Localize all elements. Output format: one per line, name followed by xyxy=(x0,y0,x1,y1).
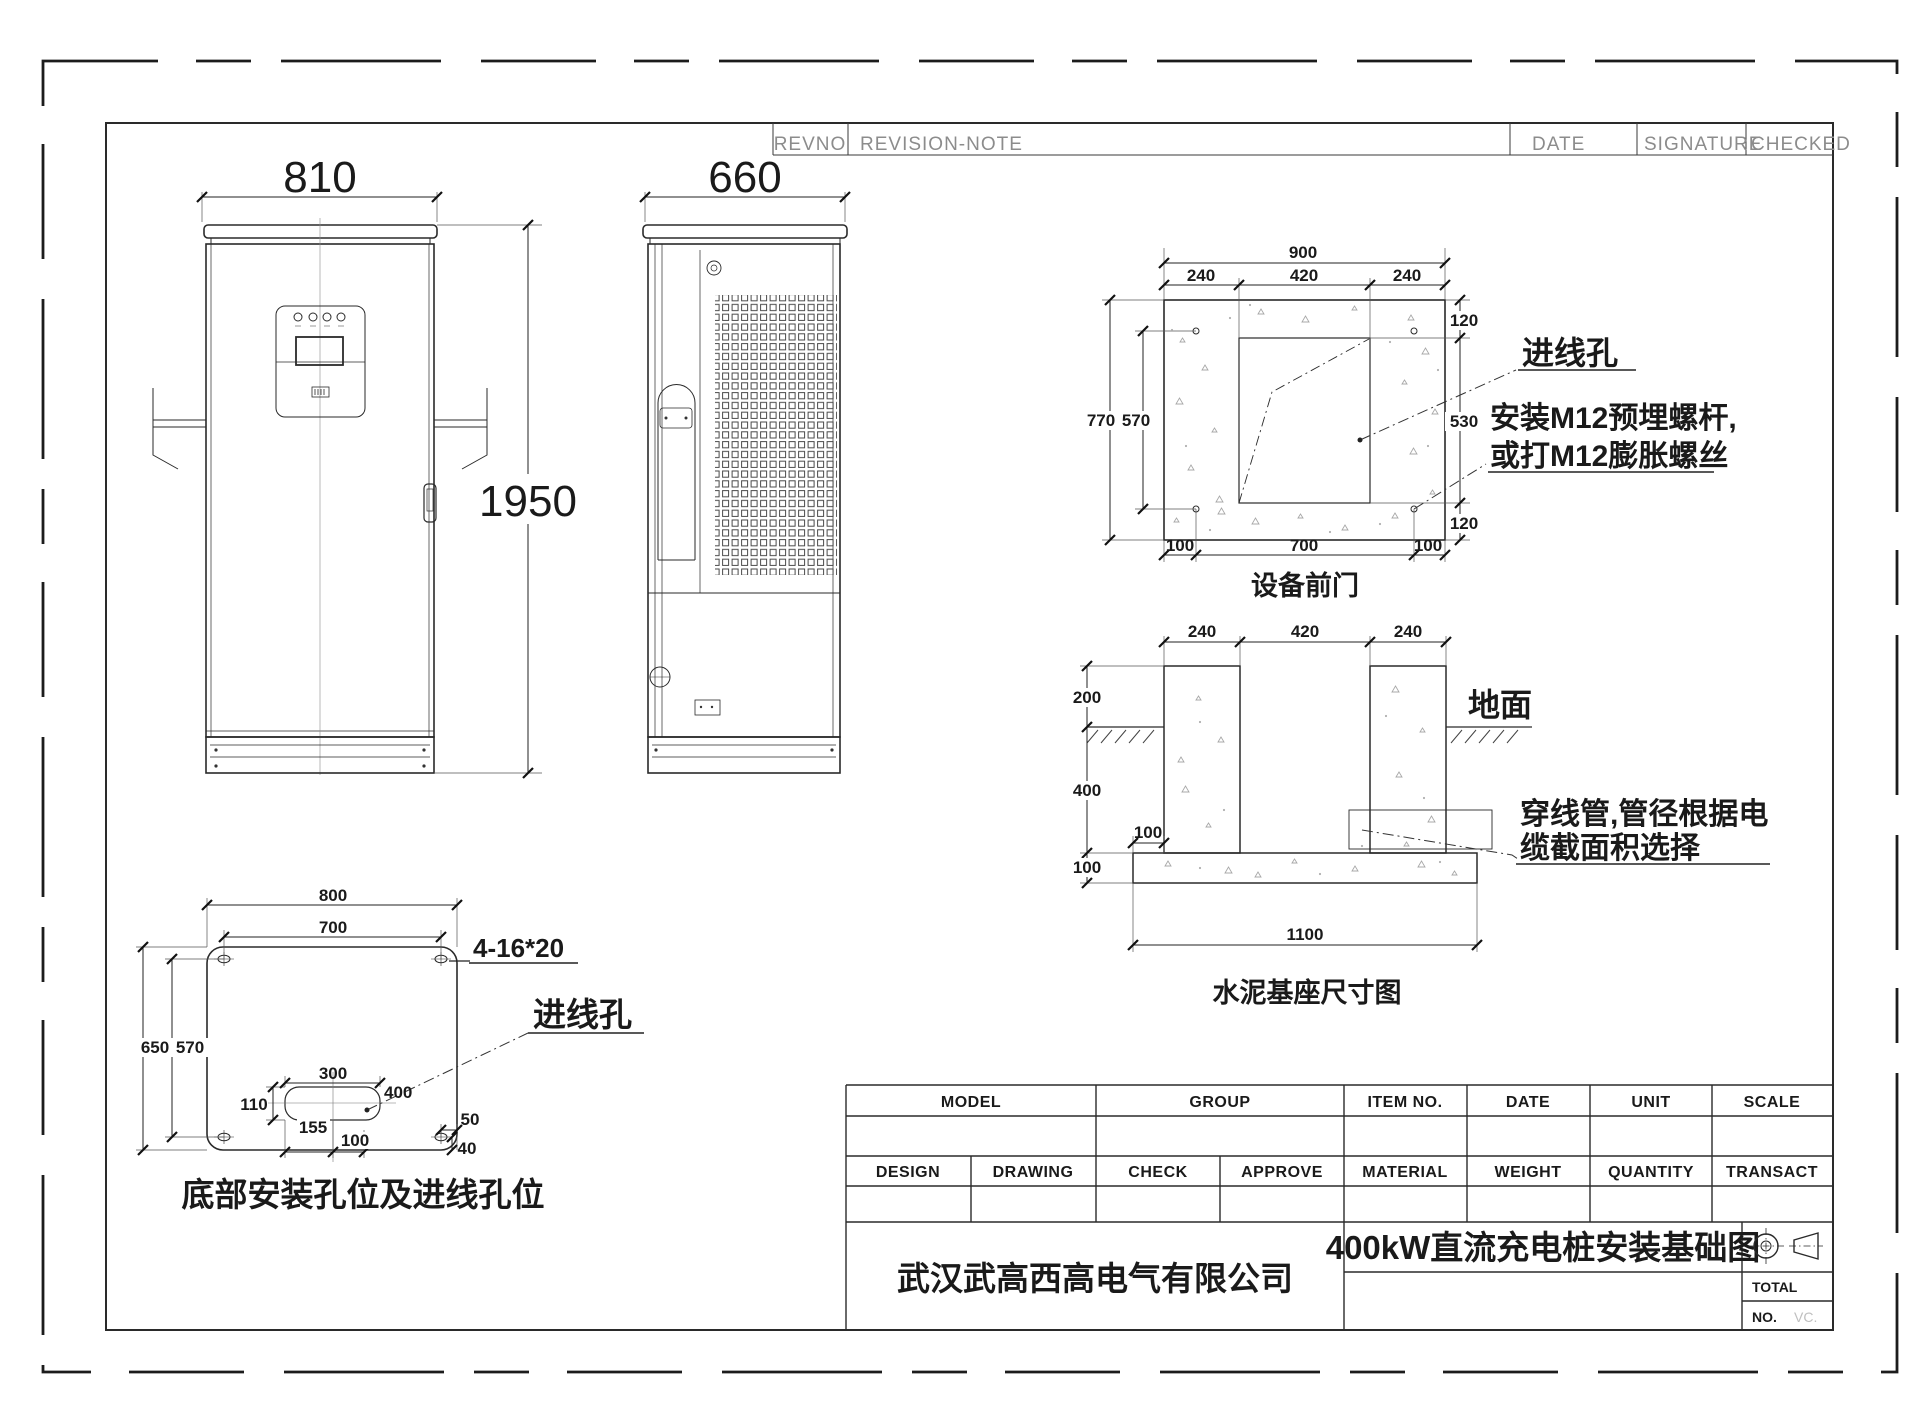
dim-sec-100thk: 100 xyxy=(1073,858,1101,877)
dim-bot-50: 50 xyxy=(461,1110,480,1129)
dim-side-width: 660 xyxy=(708,153,781,202)
dim-front-width: 810 xyxy=(283,153,356,202)
dim-bot-650: 650 xyxy=(141,1038,169,1057)
dim-plan-770: 770 xyxy=(1087,411,1115,430)
conduit-note-line1: 穿线管,管径根据电 xyxy=(1520,797,1768,831)
section-caption: 水泥基座尺寸图 xyxy=(1213,977,1402,1008)
conduit-note-line2: 缆截面积选择 xyxy=(1520,832,1701,865)
dim-plan-570: 570 xyxy=(1122,411,1150,430)
dim-plan-100r: 100 xyxy=(1414,536,1442,555)
cad-drawing-page: REVNO REVISION-NOTE DATE SIGNATURE CHECK… xyxy=(0,0,1920,1413)
tb-drawing-title: 400kW直流充电桩安装基础图 xyxy=(1326,1229,1761,1266)
dim-plan-420: 420 xyxy=(1290,266,1318,285)
bolt-note-line1: 安装M12预埋螺杆, xyxy=(1490,402,1737,435)
tb-group-label: GROUP xyxy=(1189,1094,1250,1111)
note-bolt-slots: 4-16*20 xyxy=(473,933,564,963)
dim-sec-1100: 1100 xyxy=(1287,925,1324,944)
dim-bot-300: 300 xyxy=(319,1064,347,1083)
dim-sec-400: 400 xyxy=(1073,781,1101,800)
tb-unit-label: UNIT xyxy=(1631,1094,1670,1111)
revision-header-date: DATE xyxy=(1532,134,1585,155)
dim-plan-240r: 240 xyxy=(1393,266,1421,285)
plan-cable-hole-label: 进线孔 xyxy=(1522,335,1618,371)
dim-sec-240r: 240 xyxy=(1394,622,1422,641)
dim-bot-700: 700 xyxy=(319,918,347,937)
tb-drawing-label: DRAWING xyxy=(993,1164,1074,1181)
dim-bot-800: 800 xyxy=(319,886,347,905)
dim-sec-100edge: 100 xyxy=(1134,823,1162,842)
dim-sec-420: 420 xyxy=(1291,622,1319,641)
revision-header-revno: REVNO xyxy=(774,134,847,155)
tb-total-label: TOTAL xyxy=(1752,1279,1798,1295)
dim-bot-100: 100 xyxy=(341,1131,369,1150)
dim-plan-120t: 120 xyxy=(1450,311,1478,330)
dim-bot-110: 110 xyxy=(240,1095,267,1114)
tb-design-label: DESIGN xyxy=(876,1164,940,1181)
dim-bot-40: 40 xyxy=(458,1139,477,1158)
dim-bot-570: 570 xyxy=(176,1038,204,1057)
tb-quantity-label: QUANTITY xyxy=(1608,1164,1694,1181)
dim-plan-530: 530 xyxy=(1450,412,1478,431)
tb-approve-label: APPROVE xyxy=(1241,1164,1323,1181)
tb-scale-label: SCALE xyxy=(1744,1094,1801,1111)
drawing-canvas: REVNO REVISION-NOTE DATE SIGNATURE CHECK… xyxy=(0,0,1920,1413)
tb-company-name: 武汉武高西高电气有限公司 xyxy=(897,1260,1293,1297)
plan-caption: 设备前门 xyxy=(1251,570,1359,601)
tb-model-label: MODEL xyxy=(941,1094,1001,1111)
tb-no-value: VC. xyxy=(1794,1309,1817,1325)
ground-label: 地面 xyxy=(1468,687,1532,723)
revision-header-checked: CHECKED xyxy=(1751,134,1851,155)
dim-plan-120b: 120 xyxy=(1450,514,1478,533)
dim-front-height: 1950 xyxy=(479,477,577,526)
tb-material-label: MATERIAL xyxy=(1362,1164,1447,1181)
dim-plan-100l: 100 xyxy=(1166,536,1194,555)
revision-header-note: REVISION-NOTE xyxy=(860,134,1023,155)
dim-plan-240l: 240 xyxy=(1187,266,1215,285)
revision-header-signature: SIGNATURE xyxy=(1644,134,1762,155)
dim-bot-400: 400 xyxy=(384,1083,412,1102)
dim-bot-155: 155 xyxy=(299,1118,327,1137)
tb-weight-label: WEIGHT xyxy=(1495,1164,1562,1181)
tb-no-label: NO. xyxy=(1752,1309,1777,1325)
dim-sec-240l: 240 xyxy=(1188,622,1216,641)
bottom-caption: 底部安装孔位及进线孔位 xyxy=(182,1176,545,1213)
tb-check-label: CHECK xyxy=(1128,1164,1187,1181)
tb-date-label: DATE xyxy=(1506,1094,1550,1111)
dim-plan-700: 700 xyxy=(1290,536,1318,555)
bolt-note-line2: 或打M12膨胀螺丝 xyxy=(1490,440,1728,473)
tb-itemno-label: ITEM NO. xyxy=(1367,1094,1442,1111)
vent-grille xyxy=(715,295,837,575)
tb-transact-label: TRANSACT xyxy=(1726,1164,1818,1181)
bottom-cable-hole-label: 进线孔 xyxy=(533,996,632,1033)
dim-sec-200: 200 xyxy=(1073,688,1101,707)
dim-plan-900: 900 xyxy=(1289,243,1317,262)
